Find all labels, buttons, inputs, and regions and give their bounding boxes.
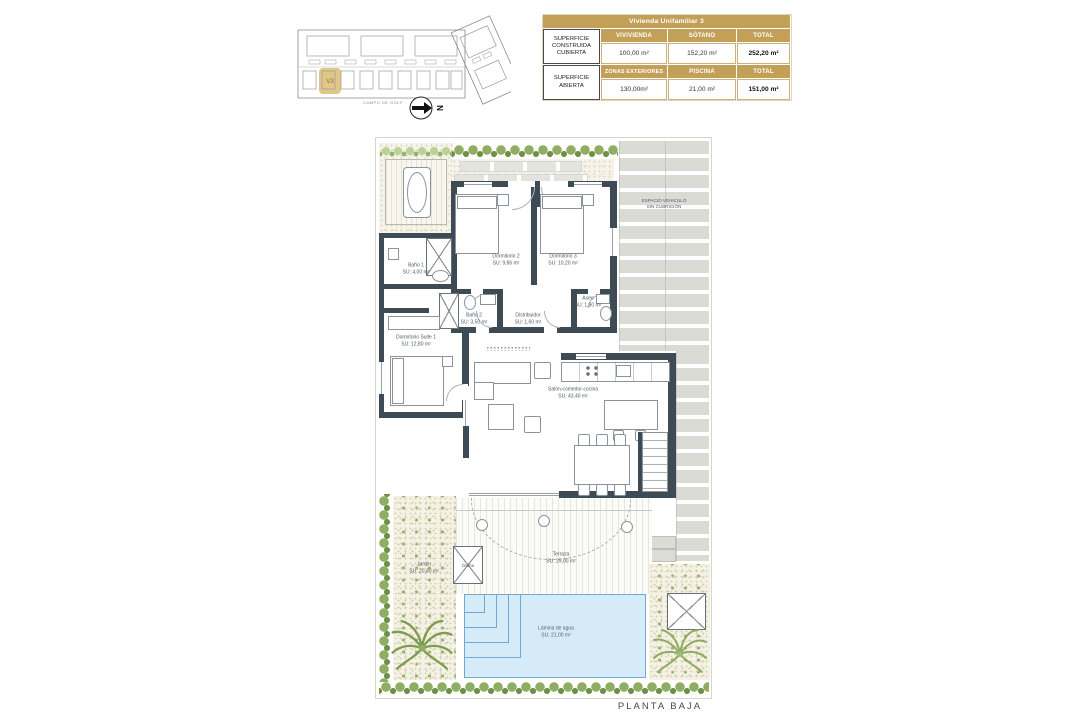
terrace-table: [538, 515, 550, 527]
bathtub-basin: [407, 172, 427, 213]
toilet-aseo: [600, 306, 612, 321]
open-col-header: TOTAL: [737, 65, 790, 78]
open-label: SUPERFICIE ABIERTA: [543, 65, 600, 100]
site-street-label: CAMPO DE GOLF: [363, 100, 403, 105]
window: [574, 182, 602, 187]
plant-row-spa: [380, 144, 452, 158]
wardrobe-suite: [388, 316, 440, 330]
nightstand: [442, 356, 453, 367]
north-arrow-icon: N: [410, 97, 444, 119]
room-name: Terraza: [546, 551, 575, 558]
room-label-distribuidor: Distribuidor SU: 1,60 m²: [515, 312, 542, 326]
room-area: SU: 4,00 m²: [403, 269, 430, 275]
room-area: SU: 43,40 m²: [558, 393, 587, 399]
stair-rail: [638, 432, 642, 492]
wall-segment: [379, 284, 454, 289]
driveway: [619, 141, 709, 351]
armchair: [524, 416, 541, 433]
room-area: SU: 12,80 m²: [401, 341, 430, 347]
window: [379, 362, 384, 394]
pool-step: [464, 594, 485, 613]
area-summary-table: Vivienda Unifamiliar 3 SUPERFICIE CONSTR…: [542, 14, 792, 101]
toilet-bano2: [464, 295, 476, 310]
bed-pillow: [457, 196, 497, 209]
room-label-bano1: Baño 1 SU: 4,00 m²: [403, 262, 430, 276]
wall-segment: [379, 412, 465, 418]
room-area: SU: 9,86 m²: [493, 260, 520, 266]
kitchen-sink: [616, 365, 631, 377]
covered-value: 152,20 m²: [668, 43, 736, 64]
site-key-plan: V3 CAMPO DE GOLF N: [293, 10, 511, 122]
covered-col-header: VIVIVIENDA: [601, 29, 667, 42]
entry-step: [648, 536, 676, 549]
room-label-salon: Salón-comedor-cocina SU: 43,40 m²: [548, 386, 598, 400]
chair: [614, 484, 626, 496]
sink-bano1: [388, 248, 399, 260]
door-arc: [544, 311, 560, 328]
room-label-dormitorio-3: Dormitorio 3 SU: 10,20 m²: [548, 253, 577, 267]
entry-step: [648, 549, 676, 562]
room-label-bano2: Baño 2 SU: 3,50 m²: [461, 312, 488, 326]
covered-total: 252,20 m²: [737, 43, 790, 64]
plant-row-top: [452, 141, 618, 159]
room-name: Dormitorio 3: [548, 253, 577, 260]
room-label-jardin: Jardín SU: 20,40 m²: [409, 561, 438, 575]
stove-burners: [584, 365, 601, 377]
north-label: N: [435, 105, 444, 111]
sofa: [474, 362, 531, 384]
room-label-ducha: Ducha: [462, 563, 474, 569]
open-col-header: ZONAS EXTERIORES: [601, 65, 667, 78]
room-area: SU: 20,40 m²: [409, 568, 438, 574]
room-name: Ducha: [462, 563, 474, 569]
driveway-label: ESPACIO VEHICULO SIN CUBRICIÓN: [642, 198, 687, 210]
site-annex: [451, 16, 511, 104]
radiator-grille: [486, 346, 530, 351]
wall-segment: [497, 289, 503, 333]
room-name: Dormitorio 2: [492, 253, 519, 260]
terrace-table: [476, 519, 488, 531]
coffee-table: [488, 404, 514, 430]
room-area: SU: 3,50 m²: [461, 319, 488, 325]
nightstand: [497, 194, 509, 206]
terrace-line: [456, 510, 652, 511]
room-name: Baño 2: [461, 312, 488, 319]
palm-tree-icon: [388, 610, 456, 682]
palm-tree-icon: [650, 620, 710, 684]
table-title: Vivienda Unifamiliar 3: [543, 15, 790, 28]
chair: [596, 484, 608, 496]
room-area: SU: 10,20 m²: [548, 260, 577, 266]
sofa-chaise: [474, 382, 494, 400]
shower-bano2: [439, 293, 459, 329]
bed-pillow: [392, 358, 404, 404]
room-label-aseo: Aseo SU: 1,90 m²: [575, 295, 602, 309]
room-label-piscina: Lámina de agua SU: 21,00 m²: [538, 625, 574, 639]
room-name: Jardín: [409, 561, 438, 568]
driveway-label-line2: SIN CUBRICIÓN: [642, 204, 687, 210]
open-value: 130,00m²: [601, 79, 667, 100]
site-unit-label: V3: [326, 79, 334, 85]
chair: [578, 484, 590, 496]
door-arc: [446, 384, 463, 401]
room-area: SU: 1,90 m²: [575, 302, 602, 308]
entry-pavers: [460, 161, 582, 172]
window: [576, 354, 606, 359]
armchair: [534, 362, 551, 379]
window: [610, 228, 617, 256]
covered-col-header: SÓTANO: [668, 29, 736, 42]
room-area: SU: 1,60 m²: [515, 319, 542, 325]
staircase: [642, 432, 668, 492]
open-total: 151,00 m²: [737, 79, 790, 100]
room-name: Dormitorio Suite 1: [396, 334, 436, 341]
door-opening: [476, 327, 489, 333]
driveway-strip: [676, 351, 709, 561]
door-opening: [544, 327, 557, 333]
floor-plan: ESPACIO VEHICULO SIN CUBRICIÓN: [375, 137, 712, 699]
sliding-glass-door: [469, 493, 559, 496]
covered-value: 100,00 m²: [601, 43, 667, 64]
bed-pillow: [542, 196, 582, 209]
kitchen-island: [604, 400, 658, 430]
site-house: [361, 36, 403, 56]
terrace-table: [621, 521, 633, 533]
room-name: Lámina de agua: [538, 625, 574, 632]
covered-label: SUPERFICIE CONSTRUIDA CUBIERTA: [543, 29, 600, 64]
covered-col-header: TOTAL: [737, 29, 790, 42]
room-name: Baño 1: [403, 262, 430, 269]
room-name: Distribuidor: [515, 312, 542, 319]
sink-bano2: [480, 294, 496, 305]
wall-segment: [379, 308, 429, 313]
room-name: Salón-comedor-cocina: [548, 386, 598, 393]
open-col-header: PISCINA: [668, 65, 736, 78]
site-parking-row: [309, 60, 456, 64]
room-label-dormitorio-2: Dormitorio 2 SU: 9,86 m²: [492, 253, 519, 267]
room-name: Aseo: [575, 295, 602, 302]
nightstand: [582, 194, 594, 206]
window: [464, 182, 492, 187]
floor-title: PLANTA BAJA: [555, 701, 765, 712]
open-value: 21,00 m²: [668, 79, 736, 100]
site-house: [307, 36, 349, 56]
room-area: SU: 29,00 m²: [546, 558, 575, 564]
dining-table: [574, 445, 630, 485]
room-label-suite: Dormitorio Suite 1 SU: 12,80 m²: [396, 334, 436, 348]
room-label-terraza: Terraza SU: 29,00 m²: [546, 551, 575, 565]
room-area: SU: 21,00 m²: [541, 632, 570, 638]
toilet-bano1: [432, 270, 449, 282]
site-house: [415, 36, 457, 56]
